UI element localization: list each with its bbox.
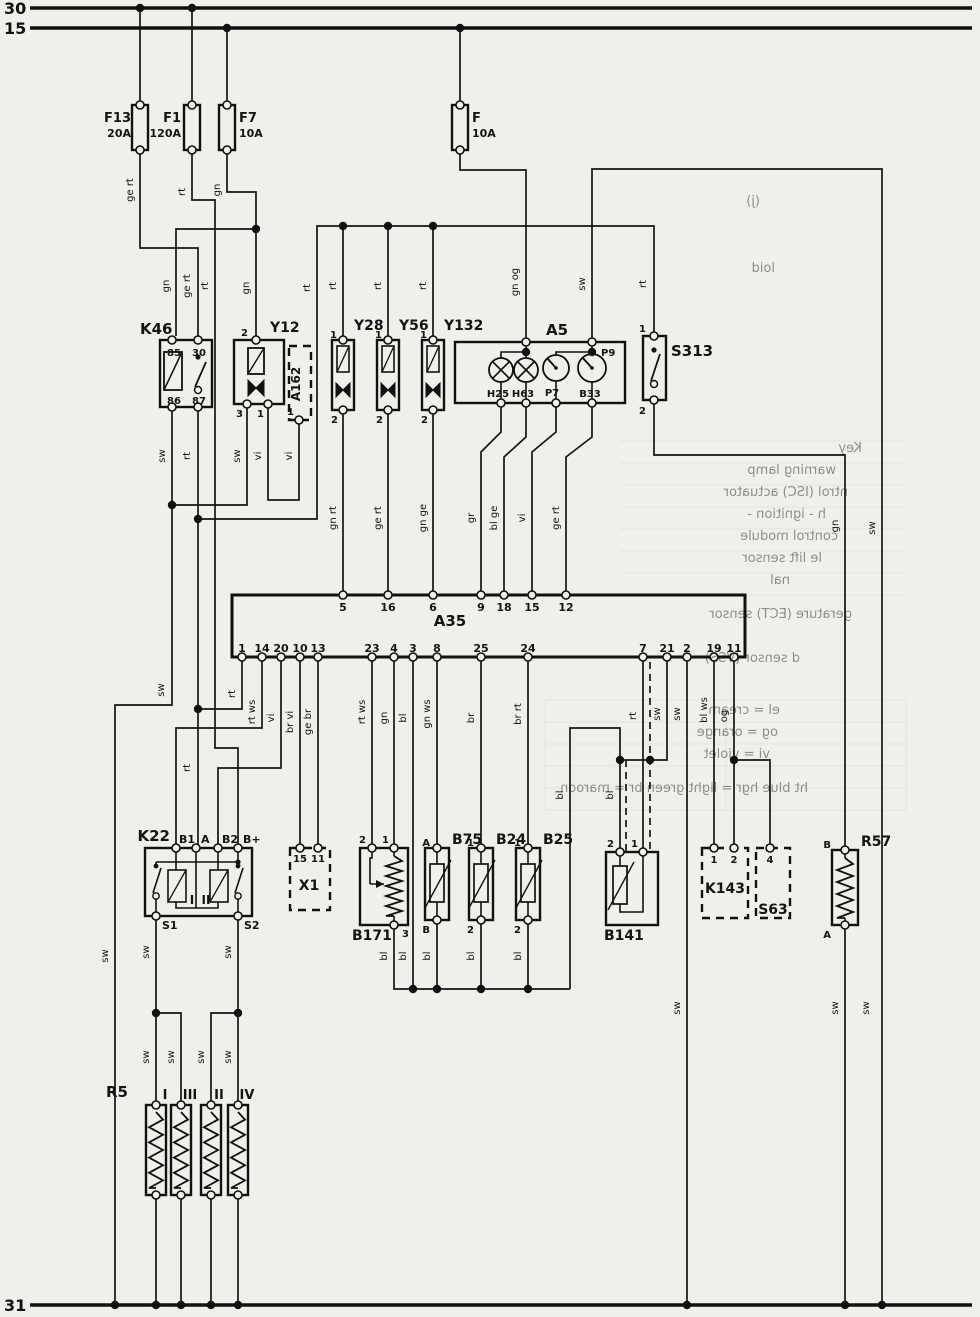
wire-label: gn [161, 280, 172, 293]
pin-label: 24 [520, 642, 536, 655]
terminal-pin [730, 844, 738, 852]
sub-label: II [214, 1088, 224, 1103]
terminal-pin [339, 336, 347, 344]
resistor-zigzag-icon [174, 1112, 188, 1188]
terminal-pin [152, 1101, 160, 1109]
component-label: S313 [671, 342, 713, 360]
junction-dot [878, 1301, 886, 1309]
fuse-label: 20A [107, 127, 131, 140]
wire-p7-to-pin15 [532, 407, 556, 591]
wire-label: vi [284, 452, 295, 461]
component-k22 [145, 848, 252, 916]
wire-label: gn og [510, 268, 521, 296]
terminal-pin [252, 336, 260, 344]
pin-label: S2 [244, 919, 260, 932]
pin-label: 1 [382, 835, 389, 846]
component-label: X1 [299, 878, 320, 894]
terminal-pin [500, 591, 508, 599]
pin-label: 21 [659, 642, 674, 655]
wire-label: sw [100, 949, 111, 962]
terminal-pin [384, 406, 392, 414]
bleedthrough-text-line: le lift sensor [742, 551, 822, 566]
sub-label: P9 [601, 348, 615, 359]
bleedthrough-text-line: h - ignition - [747, 507, 826, 522]
pin-label: 85 [167, 348, 181, 359]
pin-label: 14 [254, 642, 270, 655]
terminal-pin [766, 844, 774, 852]
component-label: A5 [546, 321, 568, 339]
pin-label: 11 [311, 854, 325, 865]
bleedthrough-text-line: warning lamp [747, 463, 836, 478]
terminal-pin [522, 338, 530, 346]
wire-label: bl [466, 951, 477, 960]
pin-label: 4 [767, 855, 774, 866]
terminal-pin [433, 916, 441, 924]
wire-label: sw [196, 1050, 207, 1063]
pin-label: 2 [607, 839, 614, 850]
pin-label: 2 [514, 925, 521, 936]
wire-label: rt [373, 282, 384, 290]
resistor-zigzag-icon [204, 1112, 218, 1188]
component-y28 [332, 340, 354, 410]
fuse-label: F1 [163, 111, 181, 126]
junction-dot [339, 222, 347, 230]
terminal-pin [295, 416, 303, 424]
wire-label: br [466, 712, 477, 723]
terminal-pin [234, 912, 242, 920]
component-label: S63 [758, 902, 788, 918]
wire-h25-to-pin9 [481, 407, 501, 591]
bleedthrough-text-line: nal [770, 573, 790, 588]
pin-label: 10 [292, 642, 308, 655]
terminal-pin [588, 338, 596, 346]
junction-dot [194, 515, 202, 523]
pin-label: 2 [639, 406, 646, 417]
wire-label: ge rt [373, 506, 384, 530]
terminal-pin [194, 336, 202, 344]
pin-label: B2 [222, 833, 238, 846]
fuse-f1 [184, 105, 200, 150]
junction-dot [616, 756, 624, 764]
wire-label: rt [182, 452, 193, 460]
component-label: Y132 [443, 318, 483, 334]
wire-label: vi [266, 714, 277, 723]
wire-label: rt ws [357, 700, 368, 725]
terminal-pin [588, 399, 596, 407]
pin-label: 3 [236, 409, 243, 420]
pin-label: B+ [243, 833, 261, 846]
component-b141 [606, 852, 658, 925]
component-y132 [422, 340, 444, 410]
resistor-zigzag-icon [837, 858, 853, 918]
wire-label: vi [253, 452, 264, 461]
sub-label: H25 [487, 389, 509, 400]
fuse-f13 [132, 105, 148, 150]
junction-dot [456, 24, 464, 32]
pin-label: 2 [467, 925, 474, 936]
wire-label: rt [328, 282, 339, 290]
fuse-f [452, 105, 468, 150]
terminal-pin [223, 146, 231, 154]
wire-label: bl [379, 951, 390, 960]
pin-label: 2 [421, 415, 428, 426]
wire-r5-to-bus31 [156, 1199, 238, 1305]
terminal-pin [710, 844, 718, 852]
component-label: K46 [140, 320, 173, 338]
sub-label: B33 [579, 389, 601, 400]
component-label: B24 [496, 832, 526, 848]
terminal-pin [841, 921, 849, 929]
pin-label: 9 [477, 601, 485, 614]
terminal-pin [456, 101, 464, 109]
sub-label: II [202, 893, 211, 907]
pin-label: B [422, 925, 430, 936]
terminal-pin [339, 591, 347, 599]
bleedthrough-text-line: loid [752, 261, 775, 276]
terminal-pin [429, 591, 437, 599]
wire-label: rt [638, 280, 649, 288]
wire-label: sw [223, 945, 234, 958]
junction-dot [152, 1301, 160, 1309]
fuse-label: F [472, 111, 481, 126]
wire-label: rt [177, 188, 188, 196]
pin-label: 2 [241, 328, 248, 339]
terminal-pin [296, 844, 304, 852]
wire-label: rt ws [247, 700, 258, 725]
resistor-zigzag-icon [149, 1112, 163, 1188]
junction-dot [234, 1301, 242, 1309]
junction-dot [177, 1301, 185, 1309]
bleedthrough-text-line: (j) [746, 194, 760, 209]
terminal-pin [429, 336, 437, 344]
terminal-pin [234, 1191, 242, 1199]
wire-a35-to-x1 [300, 657, 318, 844]
pin-label: 1 [639, 324, 646, 335]
wire-label: rt [628, 712, 639, 720]
terminal-pin [207, 1191, 215, 1199]
component-label: Y12 [269, 320, 300, 336]
junction-dot [111, 1301, 119, 1309]
bleedthrough-text-line: ntrol (ISC) actuator [723, 485, 848, 500]
component-label: B171 [352, 928, 392, 944]
wire-label: ge rt [125, 178, 136, 202]
sub-label: I [163, 1088, 168, 1103]
component-b75 [425, 848, 451, 920]
junction-dot [152, 1009, 160, 1017]
terminal-pin [433, 844, 441, 852]
wire-label: rt [227, 690, 238, 698]
fuse-label: 120A [150, 127, 182, 140]
pin-label: 23 [364, 642, 379, 655]
wire-label: rt [200, 282, 211, 290]
wire-label: sw [156, 683, 167, 696]
wire-a35-20-to-b2 [218, 657, 281, 844]
component-b24 [469, 848, 495, 920]
terminal-pin [264, 400, 272, 408]
wire-label: sw [672, 707, 683, 720]
terminal-pin [639, 848, 647, 856]
terminal-pin [524, 916, 532, 924]
junction-dot [168, 501, 176, 509]
pin-label: 2 [376, 415, 383, 426]
junction-dot [252, 225, 260, 233]
terminal-pin [477, 591, 485, 599]
schematic-svg: 30 15 31 [0, 0, 980, 1317]
pin-label: A [201, 833, 210, 846]
junction-dot [841, 1301, 849, 1309]
wire-label: rt [418, 282, 429, 290]
pin-label: 1 [375, 330, 382, 341]
terminal-pin [456, 146, 464, 154]
terminal-pin [522, 399, 530, 407]
pin-label: 1 [711, 855, 718, 866]
terminal-pin [339, 406, 347, 414]
junction-dot [188, 4, 196, 12]
junction-dot [646, 756, 654, 764]
pin-label: 16 [380, 601, 396, 614]
pin-label: 1 [330, 330, 337, 341]
terminal-pin [650, 396, 658, 404]
component-label: A35 [434, 612, 466, 630]
wire-a35-to-b171 [372, 657, 394, 844]
terminal-pin [528, 591, 536, 599]
wire-label: bl [398, 951, 409, 960]
pin-label: 1 [514, 838, 521, 849]
wire-label: gn [379, 712, 390, 725]
pin-label: 4 [390, 642, 398, 655]
wire-label: bl [398, 713, 409, 722]
wiring-diagram-page: 30 15 31 [0, 0, 980, 1317]
pin-label: 2 [731, 855, 738, 866]
junction-dot [522, 348, 530, 356]
terminal-pin [223, 101, 231, 109]
terminal-pin [497, 399, 505, 407]
terminal-pin [188, 146, 196, 154]
pin-label: 13 [310, 642, 325, 655]
sub-label: IV [240, 1088, 255, 1103]
bleedthrough-text: (j)loidKeywarning lampntrol (ISC) actuat… [560, 194, 862, 796]
pin-label: 86 [167, 396, 181, 407]
junction-dot [433, 985, 441, 993]
pin-label: 3 [402, 929, 409, 940]
pin-label: 1 [238, 642, 246, 655]
wire-label: sw [223, 1050, 234, 1063]
resistor-zigzag-icon [231, 1112, 245, 1188]
bleedthrough-text-line: og = orange [697, 725, 778, 740]
component-y12 [234, 340, 284, 404]
pin-label: B1 [179, 833, 195, 846]
pin-label: 1 [420, 330, 427, 341]
wire-dashed-alternates [626, 662, 650, 852]
terminal-pin [136, 146, 144, 154]
junction-dot [194, 705, 202, 713]
pin-label: 2 [683, 642, 691, 655]
junction-dot [477, 985, 485, 993]
wire-label: br rt [513, 703, 524, 725]
wire-h63-to-pin18 [504, 407, 526, 591]
component-label: A162 [289, 367, 303, 401]
pin-label: 25 [473, 642, 488, 655]
wire-a35-1 [198, 657, 242, 709]
junction-dot [683, 1301, 691, 1309]
wire-label: sw [141, 1050, 152, 1063]
wire-b33-to-pin12 [566, 407, 592, 591]
wire-label: gr [466, 512, 477, 523]
wire-s1-to-r5 [156, 920, 181, 1101]
component-y56 [377, 340, 399, 410]
fuse-label: F7 [239, 111, 257, 126]
terminal-pin [477, 916, 485, 924]
component-label: B141 [604, 928, 644, 944]
wire-label: bl ge [489, 506, 500, 531]
wire-label: sw [166, 1050, 177, 1063]
terminal-pin [384, 336, 392, 344]
wire-label: sw [861, 1001, 872, 1014]
pin-label: 1 [467, 838, 474, 849]
fuse-label: 10A [472, 127, 496, 140]
wire-label: rt [302, 284, 313, 292]
wire-label: sw [577, 277, 588, 290]
pin-label: A [823, 930, 831, 941]
wire-label: ge rt [551, 506, 562, 530]
sub-label: III [183, 1088, 198, 1103]
wire-label: gn ws [422, 699, 433, 728]
wire-label: bl [422, 951, 433, 960]
component-s313 [643, 336, 666, 400]
terminal-pin [136, 101, 144, 109]
wire-label: gn [212, 184, 223, 197]
terminal-pin [243, 400, 251, 408]
bleedthrough-text-line: vi = violet [704, 747, 770, 762]
bleedthrough-text-line: Key [838, 441, 862, 456]
component-label: B25 [543, 832, 573, 848]
pin-label: 30 [192, 348, 206, 359]
fuse-label: 10A [239, 127, 263, 140]
bus-31-label: 31 [4, 1296, 26, 1315]
wire-label: sw [830, 1001, 841, 1014]
wire-label: gn [241, 282, 252, 295]
pin-label: 6 [429, 601, 437, 614]
pin-label: 2 [359, 835, 366, 846]
terminal-pin [314, 844, 322, 852]
junction-dot [234, 1009, 242, 1017]
wire-label: sw [141, 945, 152, 958]
bleedthrough-text-line: ht blue hgr = light green br = maroon [560, 781, 808, 796]
bleedthrough-text-line: d sensor (VSS) [705, 651, 800, 666]
junction-dot [384, 222, 392, 230]
junction-dot [524, 985, 532, 993]
wire-label: sw [232, 449, 243, 462]
pin-label: 15 [524, 601, 539, 614]
wire-label: bl ws [699, 697, 710, 723]
terminal-pin [562, 591, 570, 599]
fuse-label: F13 [104, 111, 131, 126]
pin-label: 1 [287, 407, 294, 418]
wire-rt-distribution [198, 226, 654, 519]
junction-dot [409, 985, 417, 993]
component-label: R5 [106, 1083, 128, 1101]
wire-label: bl [513, 951, 524, 960]
fuse-f7 [219, 105, 235, 150]
component-label: K143 [705, 881, 745, 897]
wire-bl-riser-to-b141 [570, 728, 620, 989]
terminal-pin [841, 846, 849, 854]
pin-label: 1 [631, 839, 638, 850]
component-b25 [516, 848, 542, 920]
terminal-pin [429, 406, 437, 414]
wire-label: sw [867, 521, 878, 534]
wire-label: gn ge [418, 504, 429, 532]
wire-label: sw [157, 449, 168, 462]
pin-label: 15 [293, 854, 307, 865]
terminal-pin [384, 591, 392, 599]
terminal-pin [368, 844, 376, 852]
pin-label: A [422, 838, 430, 849]
junction-dot [136, 4, 144, 12]
bleedthrough-text-line: el = cream [708, 703, 780, 718]
pin-label: 3 [409, 642, 417, 655]
bleedthrough-text-line: control module [740, 529, 838, 544]
wire-label: gn rt [328, 506, 339, 530]
terminal-pin [650, 332, 658, 340]
pin-label: B [823, 840, 831, 851]
terminal-pin [390, 844, 398, 852]
pin-label: 7 [639, 642, 647, 655]
wire-bl-bus [394, 929, 570, 989]
wire-label: rt [182, 764, 193, 772]
wire-a35-to-sensors [437, 657, 528, 844]
pin-label: 12 [558, 601, 573, 614]
junction-dot [223, 24, 231, 32]
junction-dot [207, 1301, 215, 1309]
pin-label: 2 [331, 415, 338, 426]
pin-label: 8 [433, 642, 441, 655]
wire-label: sw [652, 707, 663, 720]
terminal-pin [214, 844, 222, 852]
terminal-pin [188, 101, 196, 109]
pin-label: S1 [162, 919, 178, 932]
wire-label: sw [672, 1001, 683, 1014]
sub-label: H63 [512, 389, 534, 400]
pin-label: 5 [339, 601, 347, 614]
resistor-zigzag-icon [386, 856, 402, 916]
terminal-pin [152, 1191, 160, 1199]
wire-valves-to-a35 [343, 414, 433, 591]
junction-dot [588, 348, 596, 356]
component-label: K22 [138, 827, 171, 845]
bus-15-label: 15 [4, 19, 26, 38]
wire-label: br vi [285, 711, 296, 733]
component-label: R57 [861, 834, 891, 850]
bus-30-label: 30 [4, 0, 26, 18]
sub-label: P7 [545, 388, 559, 399]
wire-label: vi [517, 514, 528, 523]
terminal-pin [177, 1191, 185, 1199]
terminal-pin [552, 399, 560, 407]
wire-label: ge br [303, 708, 314, 735]
wire-label: ge rt [182, 274, 193, 298]
wire-sw-to-bus31-left [115, 411, 172, 1305]
bleedthrough-text-line: gerature (ECT) sensor [709, 607, 852, 622]
sub-label: I [190, 893, 194, 907]
pin-label: 1 [257, 409, 264, 420]
wire-a35-14-to-b1 [176, 657, 262, 844]
pin-label: 20 [273, 642, 289, 655]
terminal-pin [152, 912, 160, 920]
pin-label: 18 [496, 601, 511, 614]
junction-dot [429, 222, 437, 230]
pin-label: 87 [192, 396, 206, 407]
